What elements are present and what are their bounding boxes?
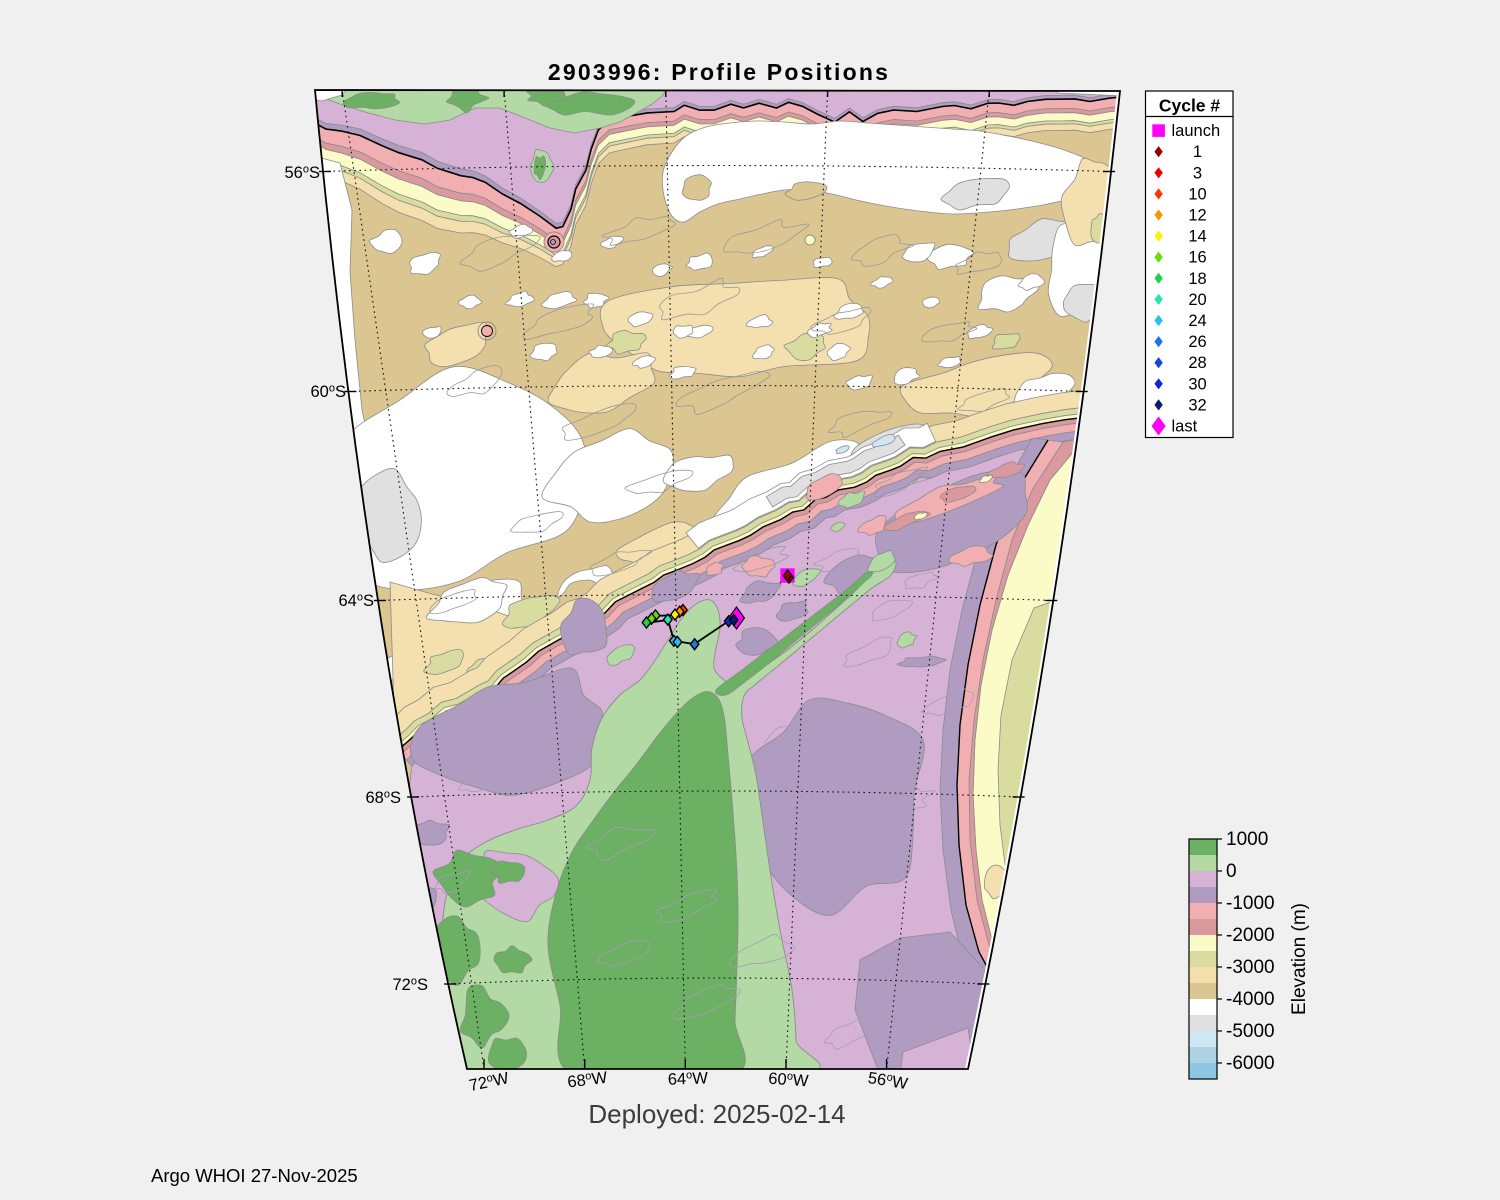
svg-text:20: 20 [1188, 291, 1206, 309]
svg-text:-4000: -4000 [1226, 989, 1275, 1010]
svg-text:1000: 1000 [1226, 829, 1268, 850]
svg-text:Argo WHOI 27-Nov-2025: Argo WHOI 27-Nov-2025 [151, 1165, 358, 1186]
svg-text:-3000: -3000 [1226, 957, 1275, 978]
svg-text:60oS: 60oS [311, 383, 347, 402]
svg-text:launch: launch [1172, 122, 1221, 140]
svg-text:-2000: -2000 [1226, 925, 1275, 946]
svg-text:0: 0 [1226, 861, 1237, 882]
svg-text:Cycle #: Cycle # [1159, 96, 1221, 116]
svg-text:68oS: 68oS [366, 789, 402, 808]
svg-text:16: 16 [1188, 249, 1206, 267]
svg-text:18: 18 [1188, 270, 1206, 288]
svg-text:28: 28 [1188, 354, 1206, 372]
svg-text:Deployed: 2025-02-14: Deployed: 2025-02-14 [588, 1099, 845, 1129]
svg-text:-5000: -5000 [1226, 1021, 1275, 1042]
svg-text:26: 26 [1188, 333, 1206, 351]
svg-text:3: 3 [1193, 164, 1202, 182]
svg-text:Elevation (m): Elevation (m) [1289, 903, 1310, 1015]
svg-text:56oS: 56oS [285, 164, 321, 183]
svg-text:14: 14 [1188, 228, 1206, 246]
svg-text:2903996: Profile Positions: 2903996: Profile Positions [548, 59, 890, 85]
svg-text:last: last [1172, 418, 1198, 436]
svg-text:-1000: -1000 [1226, 893, 1275, 914]
svg-text:72oS: 72oS [393, 976, 429, 995]
svg-text:64oS: 64oS [339, 592, 375, 611]
svg-text:30: 30 [1188, 375, 1206, 393]
svg-text:32: 32 [1188, 396, 1206, 414]
svg-text:-6000: -6000 [1226, 1053, 1275, 1074]
svg-text:10: 10 [1188, 185, 1206, 203]
svg-text:24: 24 [1188, 312, 1206, 330]
svg-text:1: 1 [1193, 143, 1202, 161]
svg-text:12: 12 [1188, 207, 1206, 225]
